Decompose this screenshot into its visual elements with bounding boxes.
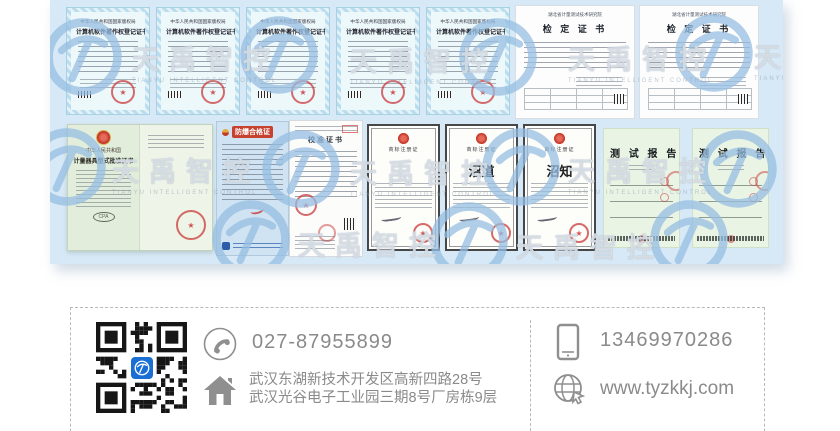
mobile-number[interactable]: 13469970286 — [600, 329, 733, 352]
certificate-gallery: 中华人民共和国国家版权局 计算机软件著作权登记证书 ★ 中华人民共和国国家版权局… — [50, 0, 783, 264]
signature-scribble — [537, 213, 558, 223]
red-seal-icon: ★ — [111, 80, 135, 104]
red-seal-icon: ★ — [291, 80, 315, 104]
trademark-text: 沼知 — [531, 161, 588, 179]
qr-code — [93, 319, 190, 416]
red-seal-icon: ★ — [295, 194, 317, 216]
red-stamp-icon — [749, 193, 758, 202]
cert-title: 计算机软件著作权登记证书 — [76, 27, 140, 36]
certificate-trademark: 商标注册证 ★ — [367, 124, 440, 251]
exproof-logo-icon — [222, 129, 229, 136]
red-seal-icon: ★ — [381, 80, 405, 104]
cert-title: 检 定 证 书 — [524, 22, 626, 35]
certificate-software-copyright: 中华人民共和国国家版权局 计算机软件著作权登记证书 ★ — [247, 8, 329, 114]
red-seal-icon: ★ — [413, 223, 433, 243]
red-stamp-icon — [660, 193, 669, 202]
red-seal-icon: ★ — [201, 80, 225, 104]
red-seal-icon: ★ — [176, 210, 206, 240]
red-stamp-box — [342, 125, 358, 133]
cert-org: 湖北省计量测试技术研究院 — [529, 11, 621, 17]
certificate-test-report: 测 试 报 告 — [603, 128, 680, 248]
trademark-text: 沼道 — [453, 161, 510, 179]
national-emblem-icon — [476, 133, 487, 144]
certificate-trademark: 商标注册证 沼道 ★ — [445, 124, 518, 251]
certificate-software-copyright: 中华人民共和国国家版权局 计算机软件著作权登记证书 ★ — [427, 8, 509, 114]
cert-title: 校准证书 — [295, 135, 357, 145]
address-line-2: 武汉光谷电子工业园三期8号厂房栋9层 — [249, 390, 497, 408]
cert-title: 计量器具型式批准证书 — [73, 156, 134, 165]
address-line-1: 武汉东湖新技术开发区高新四路28号 — [249, 372, 497, 390]
red-seal-icon: ★ — [569, 223, 589, 243]
address: 武汉东湖新技术开发区高新四路28号 武汉光谷电子工业园三期8号厂房栋9层 — [249, 372, 497, 407]
certificate-verification: 湖北省计量测试技术研究院 检 定 证 书 — [515, 5, 635, 119]
phone-icon — [203, 327, 237, 361]
certificate-test-report: 测 试 报 告 — [692, 128, 769, 248]
red-seal-icon — [755, 171, 769, 191]
national-emblem-icon — [398, 133, 409, 144]
trademark-text — [375, 161, 432, 179]
page: 中华人民共和国国家版权局 计算机软件著作权登记证书 ★ 中华人民共和国国家版权局… — [0, 0, 840, 431]
certificate-explosion-proof: 防爆合格证 — [216, 121, 289, 256]
company-logo-icon — [129, 355, 155, 381]
signature-scribble — [381, 213, 402, 223]
phone-number[interactable]: 027-87955899 — [252, 331, 393, 354]
certificate-trademark: 商标注册证 沼知 ★ — [523, 124, 596, 251]
red-seal-icon: ★ — [491, 223, 511, 243]
national-emblem-icon — [554, 133, 565, 144]
cert-country: 中华人民共和国 — [73, 147, 134, 154]
globe-icon — [552, 372, 586, 406]
signature-scribble — [249, 204, 265, 215]
certificate-type-approval: 中华人民共和国 计量器具型式批准证书 CPA ★ — [67, 124, 213, 251]
certificate-calibration: 校准证书 ★ — [289, 120, 363, 257]
cert-authority: 中华人民共和国国家版权局 — [79, 18, 138, 24]
cert-title: 商标注册证 — [375, 146, 432, 153]
mobile-phone-icon — [556, 323, 580, 361]
national-emblem-icon — [97, 131, 110, 144]
certificate-verification: 湖北省计量测试技术研究院 检 定 证 书 — [639, 5, 759, 119]
home-icon — [202, 373, 238, 407]
signature-scribble — [459, 213, 480, 223]
cert-title: 测 试 报 告 — [610, 145, 673, 160]
certificate-software-copyright: 中华人民共和国国家版权局 计算机软件著作权登记证书 ★ — [67, 8, 149, 114]
certificate-software-copyright: 中华人民共和国国家版权局 计算机软件著作权登记证书 ★ — [157, 8, 239, 114]
website-link[interactable]: www.tyzkkj.com — [600, 378, 734, 400]
contact-divider — [530, 320, 531, 431]
red-seal-icon: ★ — [471, 80, 495, 104]
cpa-mark: CPA — [93, 212, 115, 222]
cert-title: 防爆合格证 — [232, 126, 273, 138]
certificate-software-copyright: 中华人民共和国国家版权局 计算机软件著作权登记证书 ★ — [337, 8, 419, 114]
red-seal-icon — [666, 171, 680, 191]
footer-logo-icon — [222, 242, 230, 250]
